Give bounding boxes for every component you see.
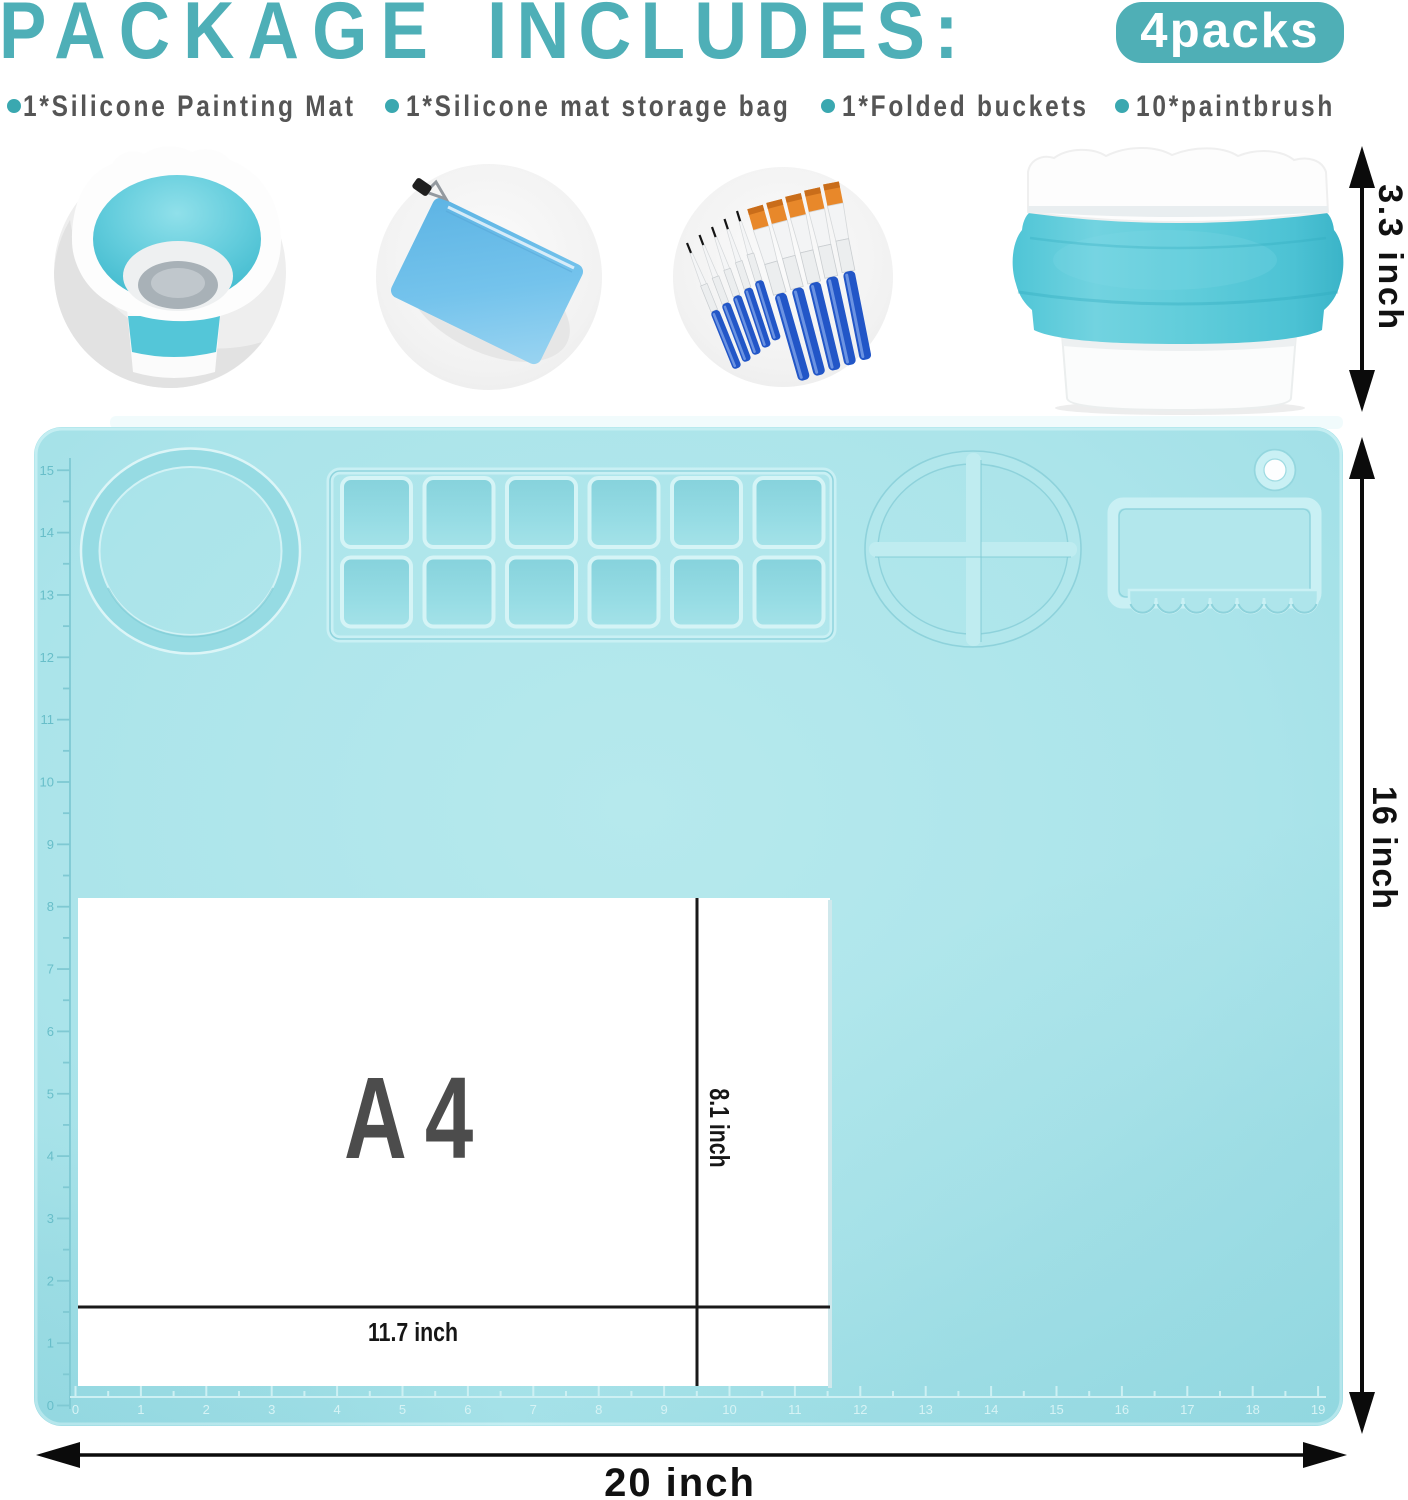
svg-text:11.7 inch: 11.7 inch <box>368 1318 458 1348</box>
svg-text:3.3 inch: 3.3 inch <box>1371 184 1408 331</box>
svg-text:11: 11 <box>41 712 55 727</box>
svg-text:16: 16 <box>1115 1402 1129 1417</box>
svg-text:4: 4 <box>333 1402 340 1417</box>
svg-text:3: 3 <box>268 1402 275 1417</box>
svg-text:2: 2 <box>47 1273 54 1288</box>
svg-text:5: 5 <box>399 1402 406 1417</box>
svg-text:13: 13 <box>918 1402 932 1417</box>
svg-text:15: 15 <box>40 463 54 478</box>
svg-text:2: 2 <box>203 1402 210 1417</box>
svg-text:1: 1 <box>47 1336 54 1351</box>
svg-text:10: 10 <box>40 775 54 790</box>
svg-text:18: 18 <box>1245 1402 1259 1417</box>
svg-text:1: 1 <box>137 1402 144 1417</box>
svg-text:11: 11 <box>788 1402 802 1417</box>
svg-text:20 inch: 20 inch <box>604 1461 756 1500</box>
svg-text:7: 7 <box>47 962 54 977</box>
svg-text:6: 6 <box>464 1402 471 1417</box>
svg-text:17: 17 <box>1180 1402 1194 1417</box>
svg-text:19: 19 <box>1311 1402 1325 1417</box>
svg-text:13: 13 <box>40 587 54 602</box>
svg-text:8: 8 <box>47 899 54 914</box>
svg-text:10: 10 <box>722 1402 736 1417</box>
svg-text:4: 4 <box>47 1149 54 1164</box>
svg-text:0: 0 <box>47 1398 54 1413</box>
svg-text:0: 0 <box>72 1402 79 1417</box>
svg-text:14: 14 <box>40 525 54 540</box>
svg-text:15: 15 <box>1049 1402 1063 1417</box>
svg-text:A4: A4 <box>344 1053 491 1183</box>
svg-text:12: 12 <box>40 650 54 665</box>
svg-text:3: 3 <box>47 1211 54 1226</box>
svg-text:8: 8 <box>595 1402 602 1417</box>
svg-text:16 inch: 16 inch <box>1365 786 1403 910</box>
svg-text:8.1 inch: 8.1 inch <box>703 1088 735 1167</box>
svg-text:6: 6 <box>47 1024 54 1039</box>
svg-text:7: 7 <box>530 1402 537 1417</box>
svg-text:9: 9 <box>47 837 54 852</box>
svg-text:14: 14 <box>984 1402 998 1417</box>
svg-text:9: 9 <box>660 1402 667 1417</box>
svg-text:5: 5 <box>47 1086 54 1101</box>
svg-text:12: 12 <box>853 1402 867 1417</box>
